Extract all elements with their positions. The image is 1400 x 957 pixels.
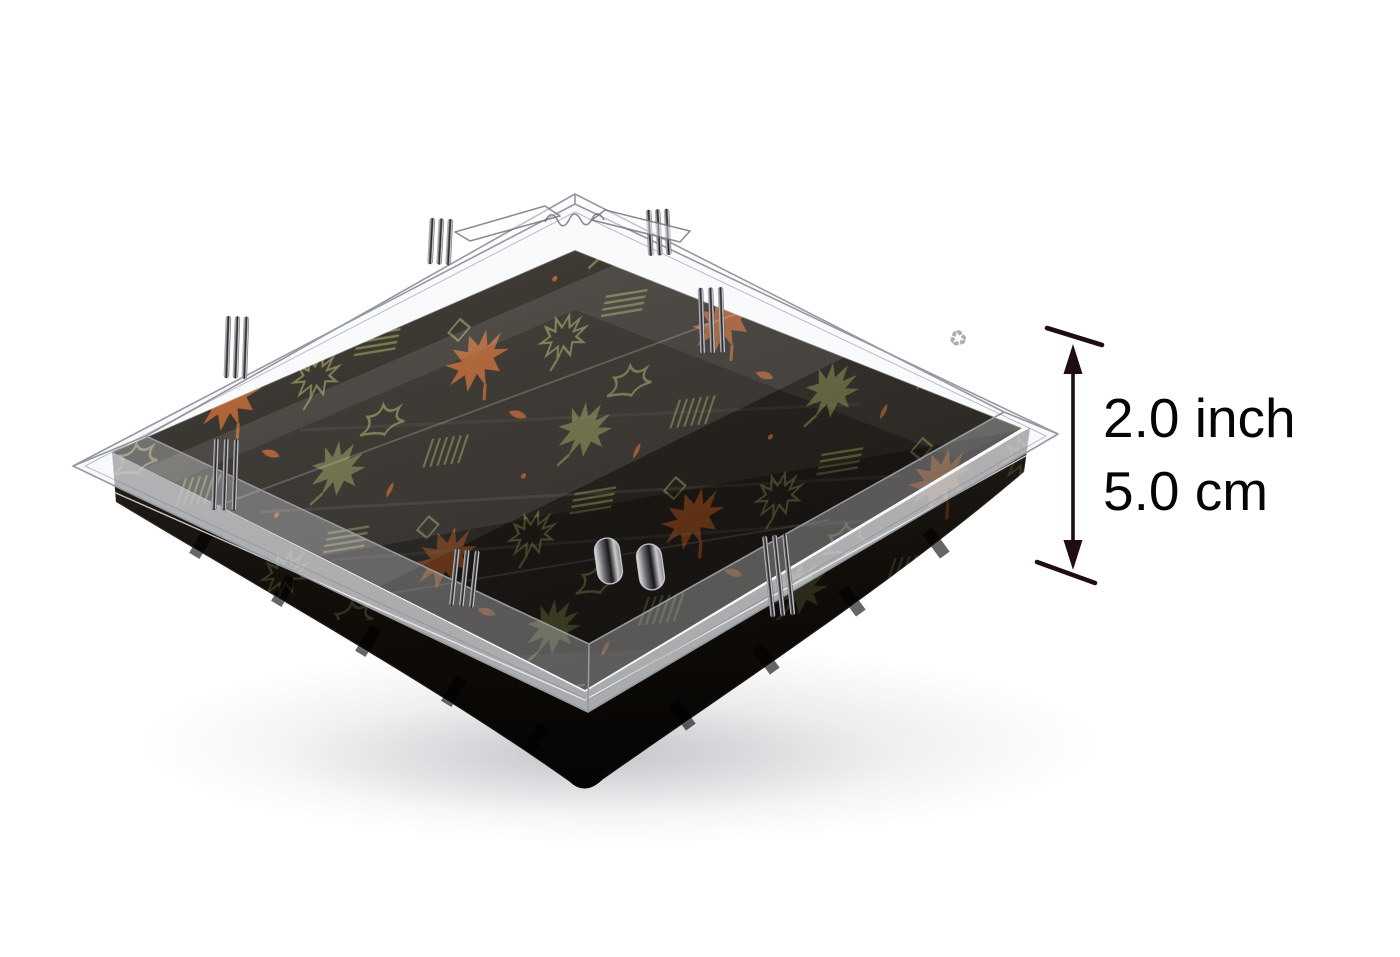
dimension-label-cm: 5.0 cm xyxy=(1103,460,1268,522)
dimension-tick-top xyxy=(1047,328,1102,345)
recycle-embossed-icon: ♻ xyxy=(946,325,971,354)
dimension-annotation: 2.0 inch 5.0 cm xyxy=(1037,328,1296,583)
product-photo: ♻ 2.0 inch 5.0 cm xyxy=(0,0,1400,957)
dimension-tick-bottom xyxy=(1037,562,1095,583)
dimension-label-inch: 2.0 inch xyxy=(1103,387,1296,449)
arrowhead-down-icon xyxy=(1064,540,1083,570)
arrowhead-up-icon xyxy=(1064,344,1083,374)
